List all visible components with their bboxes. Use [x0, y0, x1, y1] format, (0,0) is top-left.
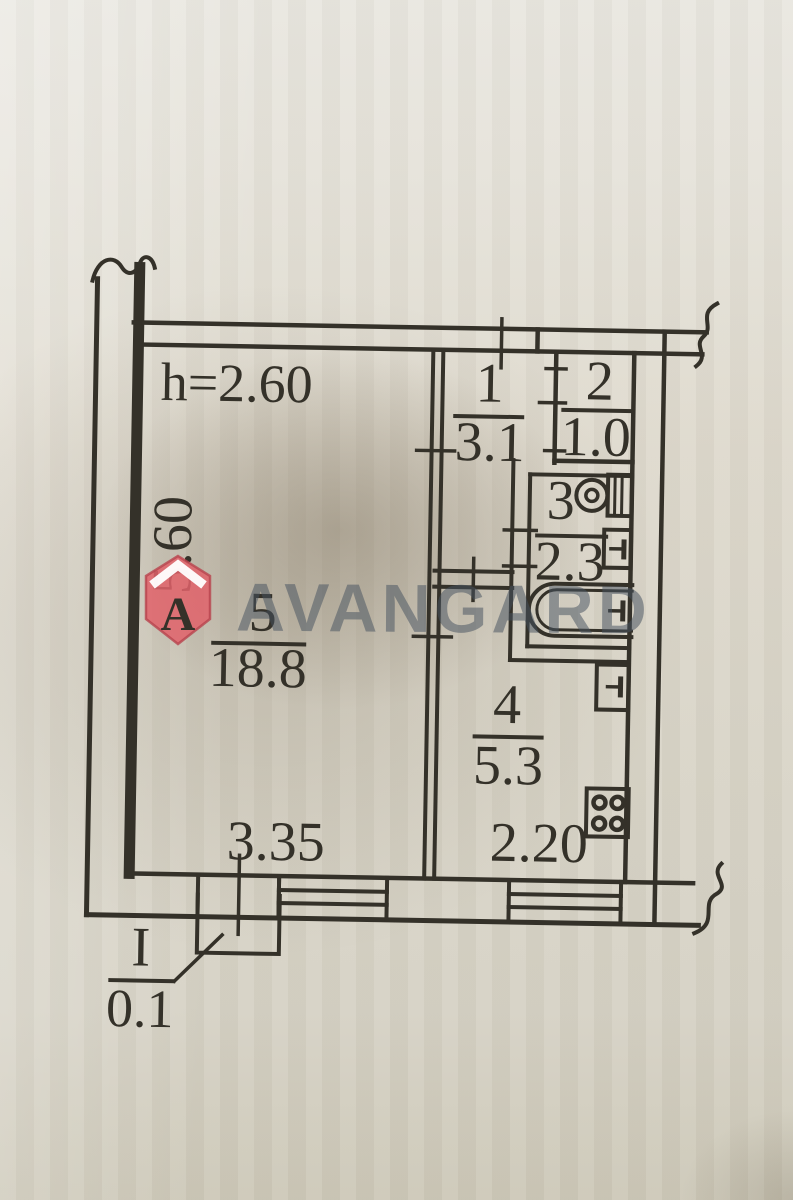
- room-area: 2.3: [534, 530, 605, 593]
- dimension-label-room5-width: 3.35: [226, 810, 325, 874]
- partition-room5: [434, 350, 443, 879]
- stove-icon: [586, 788, 629, 837]
- section-label: I 0.1: [106, 916, 176, 1039]
- room-area: 1.0: [560, 406, 631, 469]
- room-label-3: 3 2.3: [534, 469, 607, 593]
- room-label-2: 2 1.0: [560, 350, 632, 469]
- balcony: [174, 894, 280, 983]
- top-wall-outer: [134, 322, 707, 332]
- room-label-5: 5 18.8: [208, 581, 308, 701]
- section-area: 0.1: [106, 978, 175, 1039]
- kitchen-sink-icon: [596, 665, 629, 711]
- floorplan-drawing: h=2.60 1 3.1 2 1.0 3 2.3 4: [0, 0, 793, 1200]
- ceiling-height-label: h=2.60: [160, 352, 313, 415]
- left-wall: [129, 267, 140, 873]
- door-tick: [504, 530, 536, 531]
- floorplan-photo: h=2.60 1 3.1 2 1.0 3 2.3 4: [0, 0, 793, 1200]
- building-contour-left: [86, 279, 97, 915]
- room-number: 3: [546, 470, 575, 532]
- room-number: 4: [493, 674, 522, 736]
- building-contour-bottom: [86, 915, 698, 926]
- window: [508, 880, 621, 924]
- bottom-wall-inner: [135, 873, 693, 883]
- section-number: I: [131, 916, 151, 978]
- room-number: 5: [248, 581, 277, 643]
- room-area: 5.3: [473, 734, 544, 797]
- window: [278, 876, 387, 920]
- room-number: 2: [585, 350, 614, 412]
- door-tick: [413, 636, 451, 637]
- wall-break-icon: [93, 256, 155, 281]
- room-area: 3.1: [454, 411, 525, 474]
- dimension-label-kitchen-width: 2.20: [489, 812, 588, 876]
- partition-room5: [424, 350, 433, 879]
- right-wall-outer: [654, 332, 664, 925]
- dimension-label-left-side: 5.60: [141, 496, 205, 595]
- room-area: 18.8: [208, 637, 307, 701]
- room-label-4: 4 5.3: [473, 673, 545, 797]
- door-tick: [417, 450, 455, 451]
- door-tick: [473, 558, 474, 600]
- door-tick: [504, 566, 536, 567]
- wall-break-icon: [696, 303, 717, 366]
- toilet-icon: [576, 474, 632, 516]
- room-label-1: 1 3.1: [454, 352, 526, 474]
- room-number: 1: [475, 352, 504, 414]
